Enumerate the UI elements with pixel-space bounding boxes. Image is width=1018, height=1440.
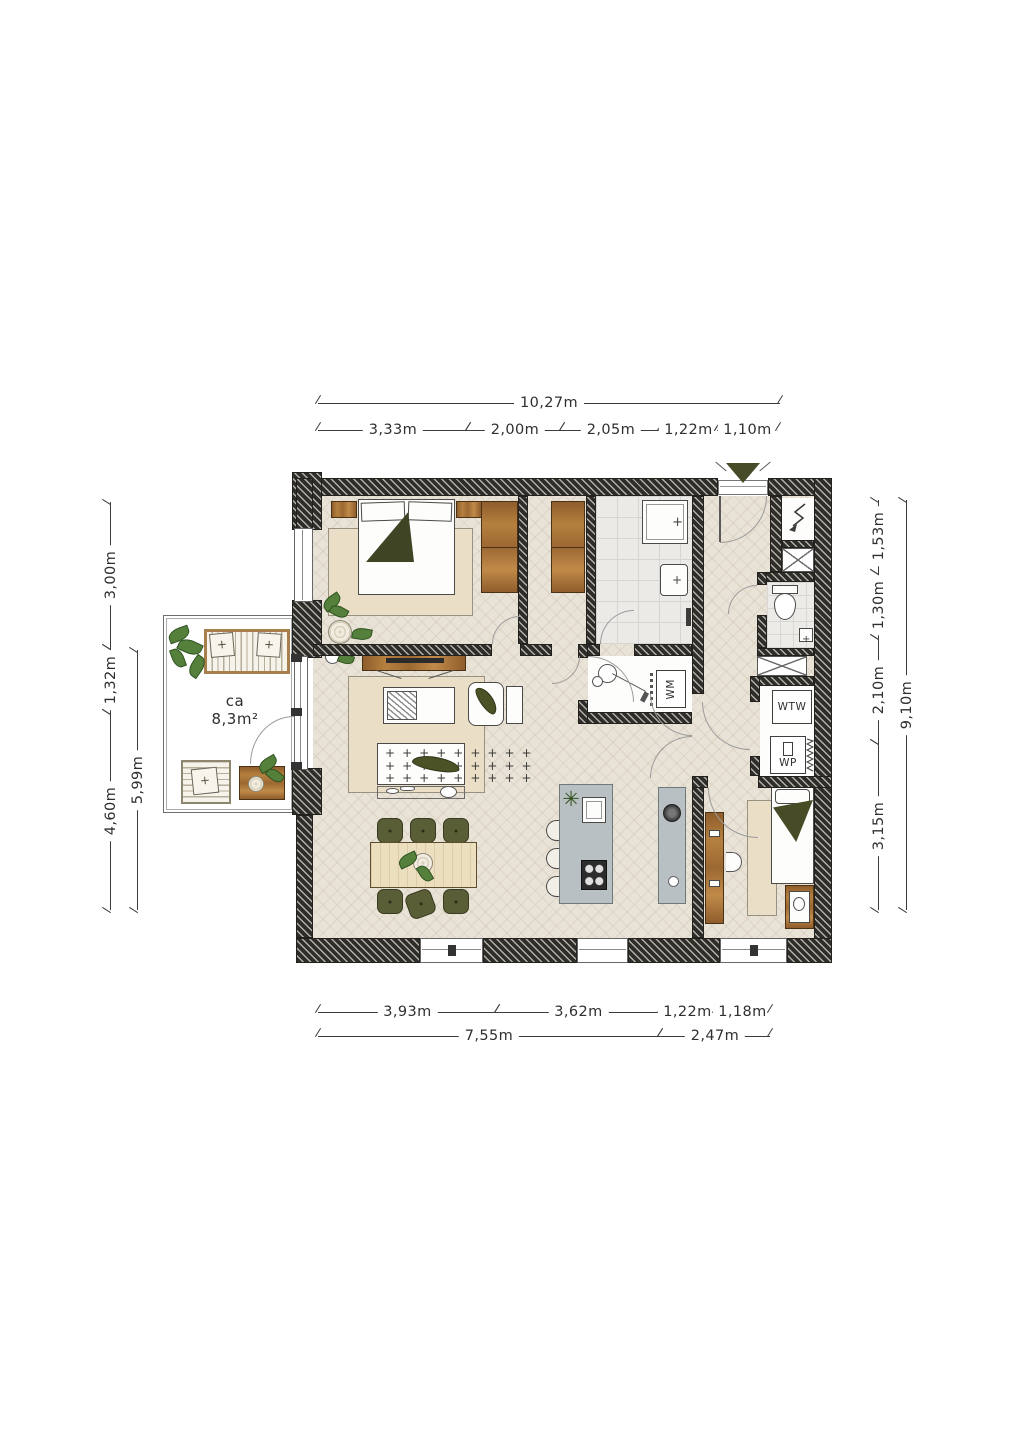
- dim-label: 3,93m: [377, 1004, 437, 1020]
- dim-label: 1,30m: [871, 574, 887, 634]
- wall: [578, 700, 588, 724]
- nightstand: [456, 501, 482, 518]
- side-table: [506, 686, 523, 724]
- wall: [520, 644, 552, 656]
- wall: [758, 776, 832, 788]
- dining-chair: [443, 889, 469, 914]
- floor-plan: 10,27m 3,33m 2,00m 2,05m 1,22m 1,10m 3,9…: [0, 0, 1018, 1440]
- ventilation-unit: WTW: [772, 690, 812, 724]
- pillow: [408, 501, 453, 522]
- pillow: [361, 501, 406, 522]
- dim-label: 7,55m: [459, 1028, 519, 1044]
- heat-pump: WP: [770, 736, 806, 774]
- balcony-area-prefix: ca: [205, 692, 265, 710]
- dim-bottom-seg: 1,18m: [715, 1012, 770, 1013]
- bowl: [386, 788, 399, 794]
- window-mullion: [448, 945, 456, 956]
- wall: [770, 496, 782, 572]
- dining-chair: [443, 818, 469, 843]
- dim-label: 4,60m: [103, 781, 119, 841]
- wall: [750, 676, 760, 702]
- entrance-arrow-tick: [715, 462, 726, 472]
- wall: [296, 478, 313, 530]
- planter-plant-pot: [248, 776, 264, 792]
- wardrobe: [551, 501, 585, 593]
- dim-label: 3,62m: [548, 1004, 608, 1020]
- wall: [634, 644, 692, 656]
- dim-right-seg: 3,15m: [878, 742, 879, 910]
- dim-bottom-total: 2,47m: [660, 1036, 770, 1037]
- dim-left-seg: 1,32m: [110, 647, 111, 712]
- chair-cushion: [191, 767, 220, 796]
- wall: [692, 776, 708, 788]
- dim-right-seg: 2,10m: [878, 637, 879, 742]
- washbasin: +: [660, 564, 688, 596]
- wall: [313, 644, 492, 656]
- window: [577, 938, 628, 963]
- sink-basin: [586, 801, 602, 819]
- wall: [292, 768, 322, 815]
- balcony-area-label: ca 8,3m²: [205, 692, 265, 728]
- wall: [692, 496, 704, 694]
- dim-label: 3,33m: [363, 422, 423, 438]
- wall: [750, 756, 760, 776]
- dining-chair: [377, 889, 403, 914]
- desk: [705, 812, 724, 924]
- corner-basin: +: [799, 628, 813, 642]
- counter-sink: [663, 804, 681, 822]
- dim-top-seg: 1,22m: [660, 430, 717, 431]
- heat-pump-icon: [783, 742, 793, 756]
- dim-label: 1,22m: [658, 422, 718, 438]
- wall: [692, 778, 704, 938]
- dim-right-seg: 1,53m: [878, 500, 879, 572]
- shaft: [757, 656, 807, 676]
- wall: [814, 478, 832, 963]
- wall: [296, 938, 420, 963]
- desk-item: [709, 880, 720, 887]
- desk-item: [709, 830, 720, 837]
- dim-label: 1,18m: [712, 1004, 772, 1020]
- dim-bottom-seg: 3,93m: [318, 1012, 497, 1013]
- wall: [782, 540, 814, 548]
- tap-icon: +: [672, 573, 682, 587]
- shaft: [782, 548, 814, 572]
- dim-right-total: 9,10m: [906, 500, 907, 910]
- striped-cushion: [387, 691, 417, 720]
- entrance-arrow-tick: [759, 462, 770, 472]
- shower-tray: +: [642, 500, 688, 544]
- dim-label: 2,05m: [581, 422, 641, 438]
- balcony-area-value: 8,3m²: [205, 710, 265, 728]
- dim-bottom-seg: 1,22m: [660, 1012, 715, 1013]
- dim-label: 3,15m: [871, 796, 887, 856]
- dim-top-seg: 2,00m: [468, 430, 562, 431]
- window-mullion: [750, 945, 758, 956]
- dining-chair: [410, 818, 436, 843]
- wardrobe-divider: [552, 547, 584, 548]
- dim-label: 1,32m: [103, 649, 119, 709]
- dim-label: 1,53m: [871, 506, 887, 566]
- dim-top-seg: 3,33m: [318, 430, 468, 431]
- ventilation-unit-label: WTW: [778, 701, 807, 713]
- wardrobe-divider: [482, 547, 517, 548]
- dim-left-seg: 4,60m: [110, 712, 111, 910]
- tv: [386, 658, 444, 663]
- wardrobe: [481, 501, 518, 593]
- bowl: [400, 786, 415, 791]
- kitchen-sink: [582, 797, 606, 823]
- dim-right-seg: 1,30m: [878, 572, 879, 637]
- radiator: [686, 608, 691, 626]
- tray: [440, 786, 457, 798]
- dim-label: 10,27m: [514, 395, 584, 411]
- dim-label: 2,10m: [871, 659, 887, 719]
- wall: [757, 615, 767, 648]
- round-pouf: [328, 620, 352, 644]
- dim-label: 1,22m: [657, 1004, 717, 1020]
- bench-cushion: [256, 632, 282, 658]
- vanity-chair: [793, 897, 805, 911]
- dim-top-seg: 1,10m: [717, 430, 778, 431]
- wall: [483, 938, 577, 963]
- wall: [628, 938, 720, 963]
- dim-bottom-total: 7,55m: [318, 1036, 660, 1037]
- dim-left-seg: 3,00m: [110, 502, 111, 647]
- wall: [586, 496, 596, 644]
- wall: [757, 572, 767, 585]
- cooktop: [581, 860, 607, 890]
- dim-label: 5,99m: [130, 750, 146, 810]
- entrance-door-line: [720, 486, 766, 487]
- heat-pump-label: WP: [779, 757, 797, 769]
- nightstand: [331, 501, 357, 518]
- dim-left-inner-total: 5,99m: [137, 650, 138, 910]
- bench-cushion: [209, 632, 235, 658]
- shower-head-icon: +: [672, 515, 683, 530]
- island-plant: [560, 789, 582, 811]
- dim-bottom-seg: 3,62m: [497, 1012, 660, 1013]
- dim-top-seg: 2,05m: [562, 430, 660, 431]
- dim-top-total: 10,27m: [318, 403, 780, 404]
- wall: [787, 938, 832, 963]
- dining-chair: [377, 818, 403, 843]
- tap-icon: +: [802, 634, 810, 645]
- entrance-arrow-icon: [726, 463, 760, 483]
- dim-label: 2,47m: [685, 1028, 745, 1044]
- boiler-coil-icon: [806, 738, 814, 772]
- intercom-icon: [787, 502, 811, 536]
- dim-label: 1,10m: [717, 422, 777, 438]
- glazing-post: [291, 654, 302, 662]
- wall: [757, 648, 814, 656]
- drain: [668, 876, 679, 887]
- wall: [296, 815, 313, 938]
- wall: [296, 478, 718, 496]
- dim-label: 9,10m: [899, 675, 915, 735]
- dim-label: 2,00m: [485, 422, 545, 438]
- dim-label: 3,00m: [103, 544, 119, 604]
- window: [294, 528, 313, 602]
- glazing-post: [291, 708, 302, 716]
